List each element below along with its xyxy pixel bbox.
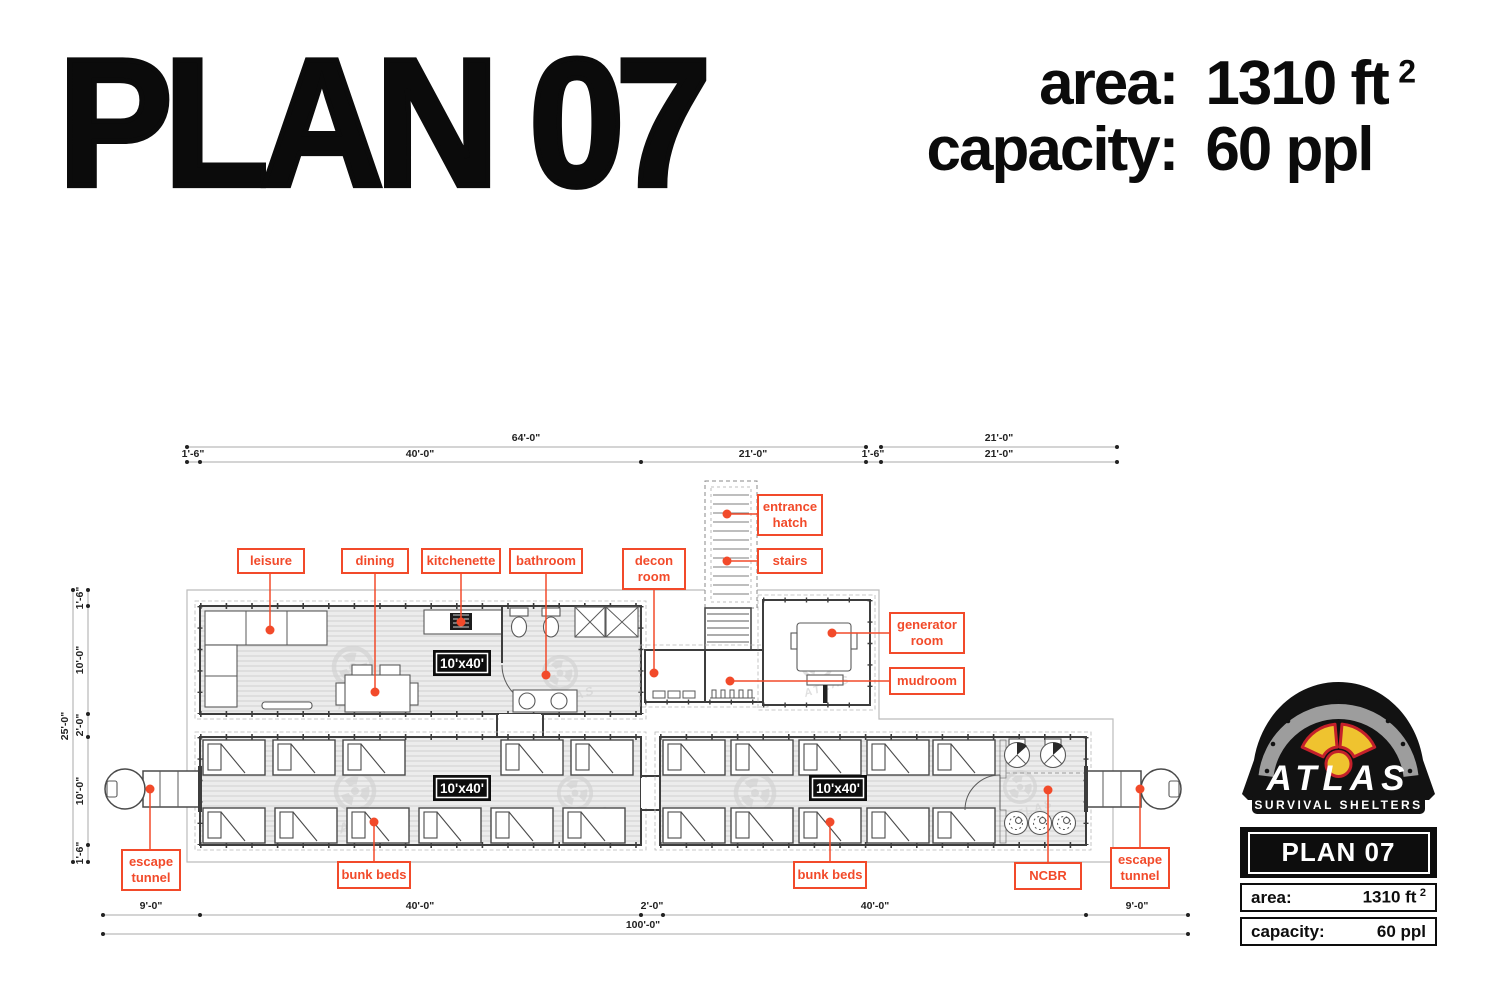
svg-text:21'-0": 21'-0" xyxy=(985,448,1014,460)
svg-text:10'x40': 10'x40' xyxy=(816,781,860,796)
svg-text:2'-0": 2'-0" xyxy=(74,714,86,737)
svg-text:room: room xyxy=(911,633,944,648)
svg-text:escape: escape xyxy=(129,854,173,869)
svg-text:1'-6": 1'-6" xyxy=(182,448,205,460)
atlas-logo: ATLAS SURVIVAL SHELTERS PLAN 07 area: 13… xyxy=(1240,676,1437,946)
container-size-badge: 10'x40' xyxy=(809,775,867,801)
svg-text:kitchenette: kitchenette xyxy=(427,553,496,568)
svg-text:NCBR: NCBR xyxy=(1029,868,1067,883)
logo-capacity-label: capacity: xyxy=(1251,922,1325,942)
svg-text:21'-0": 21'-0" xyxy=(739,448,768,460)
logo-area-sup: 2 xyxy=(1420,887,1426,899)
svg-text:escape: escape xyxy=(1118,852,1162,867)
dimensions-left: 25'-0" 1'-6" 10'-0" 2'-0" 10'-0" 1'-6" xyxy=(59,587,90,865)
svg-text:1'-6": 1'-6" xyxy=(74,842,86,865)
svg-text:mudroom: mudroom xyxy=(897,673,957,688)
container-size-badge: 10'x40' xyxy=(433,775,491,801)
svg-text:40'-0": 40'-0" xyxy=(406,900,435,912)
svg-text:decon: decon xyxy=(635,553,673,568)
logo-area-label: area: xyxy=(1251,888,1292,908)
bunk-container-left: 10'x40' xyxy=(195,732,646,850)
svg-text:bathroom: bathroom xyxy=(516,553,576,568)
capacity-value: 60 ppl xyxy=(1205,118,1414,182)
svg-text:64'-0": 64'-0" xyxy=(512,432,541,444)
logo-capacity-row: capacity: 60 ppl xyxy=(1240,917,1437,946)
living-container: 10'x40' xyxy=(195,601,646,719)
bunk-connector xyxy=(641,776,660,810)
logo-area-row: area: 1310 ft 2 xyxy=(1240,883,1437,912)
logo-capacity-value: 60 ppl xyxy=(1377,922,1426,942)
logo-plan-name: PLAN 07 xyxy=(1248,832,1430,874)
capacity-label: capacity: xyxy=(927,118,1178,182)
bunk-container-right: 10'x40' xyxy=(655,732,1091,850)
svg-text:25'-0": 25'-0" xyxy=(59,712,71,741)
atlas-logo-emblem: ATLAS SURVIVAL SHELTERS xyxy=(1240,676,1437,816)
svg-text:10'x40': 10'x40' xyxy=(440,781,484,796)
dimensions-bottom: 9'-0" 40'-0" 2'-0" 40'-0" 9'-0" 100'-0" xyxy=(101,900,1190,936)
svg-text:generator: generator xyxy=(897,617,957,632)
svg-text:leisure: leisure xyxy=(250,553,292,568)
area-value: 1310 ft 2 xyxy=(1205,52,1414,116)
floor-plan: ATLAS xyxy=(55,415,1205,975)
area-value-text: 1310 ft xyxy=(1205,49,1387,118)
entrance-shaft xyxy=(705,481,757,650)
svg-text:stairs: stairs xyxy=(773,553,808,568)
svg-text:tunnel: tunnel xyxy=(1121,868,1160,883)
svg-text:9'-0": 9'-0" xyxy=(140,900,163,912)
container-size-badge: 10'x40' xyxy=(433,650,491,676)
svg-text:10'-0": 10'-0" xyxy=(74,646,86,675)
svg-text:40'-0": 40'-0" xyxy=(861,900,890,912)
area-label: area: xyxy=(927,52,1178,116)
svg-text:tunnel: tunnel xyxy=(132,870,171,885)
logo-plan-badge: PLAN 07 xyxy=(1240,827,1437,878)
dimensions-top: 64'-0" 21'-0" 1'-6" 40'-0" 21'-0" 1'-6" … xyxy=(182,432,1119,464)
svg-text:bunk beds: bunk beds xyxy=(341,867,406,882)
logo-area-value-text: 1310 ft xyxy=(1363,888,1417,907)
logo-area-value: 1310 ft 2 xyxy=(1363,887,1426,908)
svg-text:21'-0": 21'-0" xyxy=(985,432,1014,444)
air-filter-icons xyxy=(1005,812,1076,835)
svg-text:10'-0": 10'-0" xyxy=(74,777,86,806)
svg-text:dining: dining xyxy=(356,553,395,568)
svg-text:hatch: hatch xyxy=(773,515,808,530)
decon-mudroom xyxy=(640,645,768,707)
svg-text:1'-6": 1'-6" xyxy=(862,448,885,460)
specs-block: area: 1310 ft 2 capacity: 60 ppl xyxy=(927,52,1414,183)
svg-text:100'-0": 100'-0" xyxy=(626,919,660,931)
svg-text:40'-0": 40'-0" xyxy=(406,448,435,460)
svg-text:9'-0": 9'-0" xyxy=(1126,900,1149,912)
svg-text:10'x40': 10'x40' xyxy=(440,656,484,671)
logo-brand: ATLAS xyxy=(1265,759,1410,798)
generator-container xyxy=(758,595,875,710)
connector-passage xyxy=(497,714,543,737)
svg-text:room: room xyxy=(638,569,671,584)
logo-tagline: SURVIVAL SHELTERS xyxy=(1254,798,1422,812)
svg-text:entrance: entrance xyxy=(763,499,817,514)
svg-text:2'-0": 2'-0" xyxy=(641,900,664,912)
page-title: PLAN 07 xyxy=(58,18,702,228)
escape-tunnel-right-drawing xyxy=(1084,766,1181,812)
svg-text:1'-6": 1'-6" xyxy=(74,587,86,610)
area-sup: 2 xyxy=(1398,53,1414,89)
svg-text:bunk beds: bunk beds xyxy=(797,867,862,882)
